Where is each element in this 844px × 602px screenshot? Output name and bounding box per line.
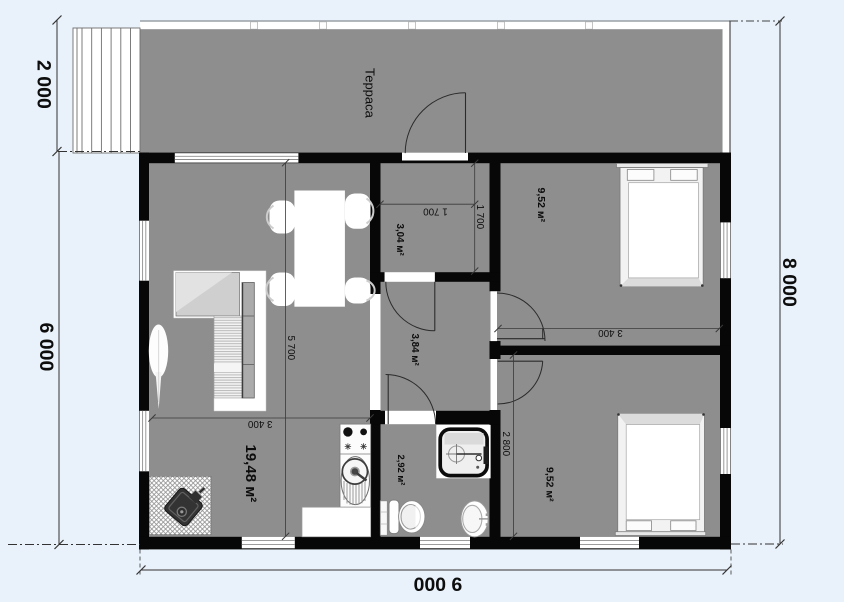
svg-text:3,04 м²: 3,04 м²	[394, 224, 405, 257]
svg-text:19,48 м²: 19,48 м²	[242, 445, 259, 503]
svg-text:3,84 м²: 3,84 м²	[409, 334, 420, 367]
svg-text:6 000: 6 000	[35, 323, 57, 372]
svg-text:8 000: 8 000	[778, 258, 800, 307]
svg-text:3 400: 3 400	[247, 418, 272, 429]
svg-text:5 700: 5 700	[285, 336, 296, 361]
svg-text:9,52 м²: 9,52 м²	[535, 188, 547, 223]
svg-text:3 400: 3 400	[598, 327, 623, 338]
svg-text:1 700: 1 700	[423, 206, 448, 217]
svg-text:9 000: 9 000	[413, 573, 462, 595]
svg-text:2 800: 2 800	[500, 432, 511, 457]
svg-text:Терраса: Терраса	[363, 68, 378, 119]
svg-text:1 700: 1 700	[474, 205, 485, 230]
svg-text:9,52 м²: 9,52 м²	[543, 467, 555, 502]
svg-text:2,92 м²: 2,92 м²	[396, 455, 407, 486]
svg-text:2 000: 2 000	[33, 60, 55, 109]
